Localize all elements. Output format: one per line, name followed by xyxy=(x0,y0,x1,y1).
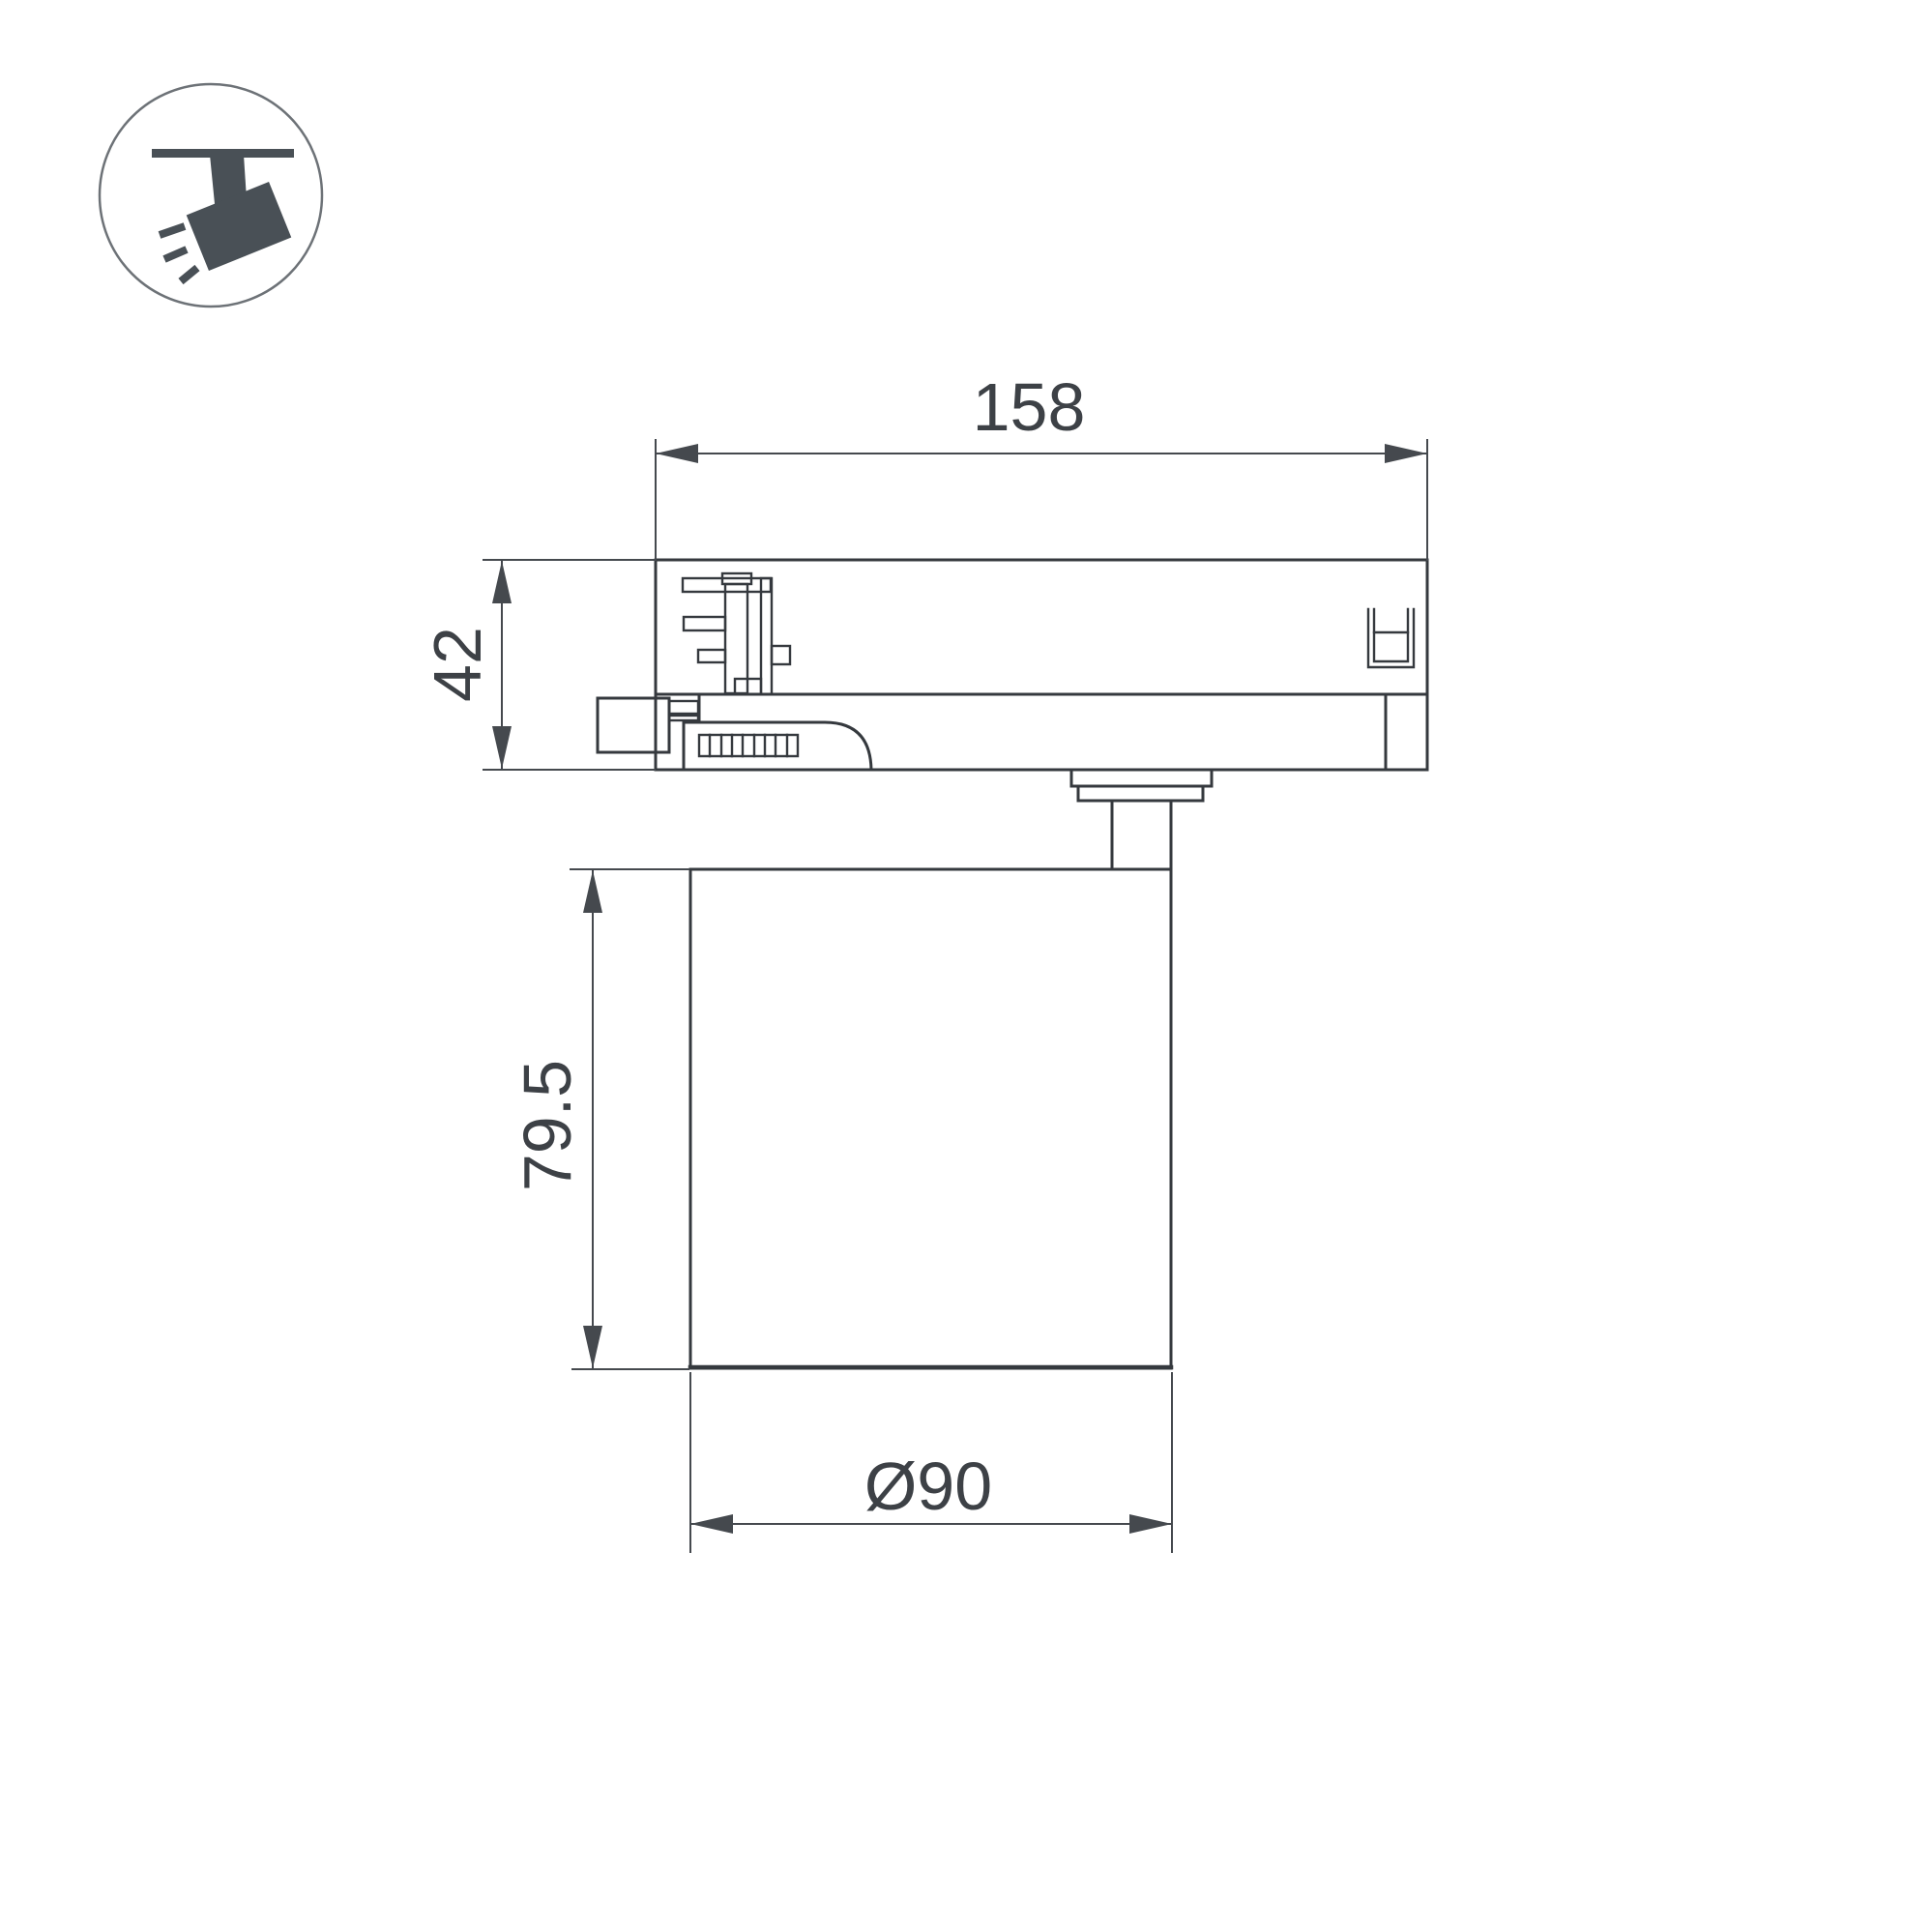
arrowhead xyxy=(583,1326,602,1368)
contact-tab xyxy=(772,646,790,664)
flange-and-neck xyxy=(1071,770,1212,869)
dim-label-adapter-height: 42 xyxy=(420,627,495,702)
step-profile xyxy=(684,694,699,770)
contact-mid-prong xyxy=(684,617,725,630)
contact-block xyxy=(683,573,790,694)
dim-body-height: 79.5 xyxy=(510,869,688,1369)
latch-detail xyxy=(669,701,698,714)
contact-low-prong xyxy=(698,650,725,662)
arrowhead xyxy=(1385,444,1427,463)
arrowhead xyxy=(1129,1514,1172,1534)
contact-spine xyxy=(761,578,772,694)
arrowhead xyxy=(583,870,602,913)
arrowhead xyxy=(690,1514,733,1534)
icon-circle xyxy=(100,84,322,307)
track-adapter xyxy=(598,560,1427,770)
arrowhead xyxy=(492,561,512,603)
grip-outline xyxy=(699,735,798,756)
flange-step-2 xyxy=(1078,786,1203,801)
neck xyxy=(1112,801,1171,869)
lock-knob xyxy=(598,698,669,752)
arrowhead xyxy=(492,726,512,769)
clip-detail xyxy=(1368,609,1414,667)
contact-insulator xyxy=(725,584,747,693)
arrowhead xyxy=(656,444,698,463)
lamp-body-outline xyxy=(690,869,1171,1368)
flange-step-1 xyxy=(1071,770,1212,786)
mounting-plate xyxy=(656,694,1427,770)
grip-rib-lines xyxy=(710,735,787,756)
drawing-canvas: 158 42 79.5 Ø90 xyxy=(0,0,1932,1932)
dim-adapter-length: 158 xyxy=(656,369,1427,560)
track-spotlight-icon xyxy=(100,84,322,307)
latch-detail-line xyxy=(669,716,698,720)
rounded-plate xyxy=(687,722,871,770)
lamp-body xyxy=(690,869,1171,1368)
technical-drawing-page: 158 42 79.5 Ø90 xyxy=(0,0,1932,1932)
dim-adapter-height: 42 xyxy=(420,560,655,770)
dim-label-body-height: 79.5 xyxy=(510,1060,585,1191)
dim-label-adapter-length: 158 xyxy=(973,369,1086,445)
dim-body-diameter: Ø90 xyxy=(690,1373,1172,1552)
dim-label-body-diameter: Ø90 xyxy=(864,1449,992,1524)
clip-inner-wall xyxy=(1374,609,1408,661)
grip-ribs xyxy=(699,735,798,756)
